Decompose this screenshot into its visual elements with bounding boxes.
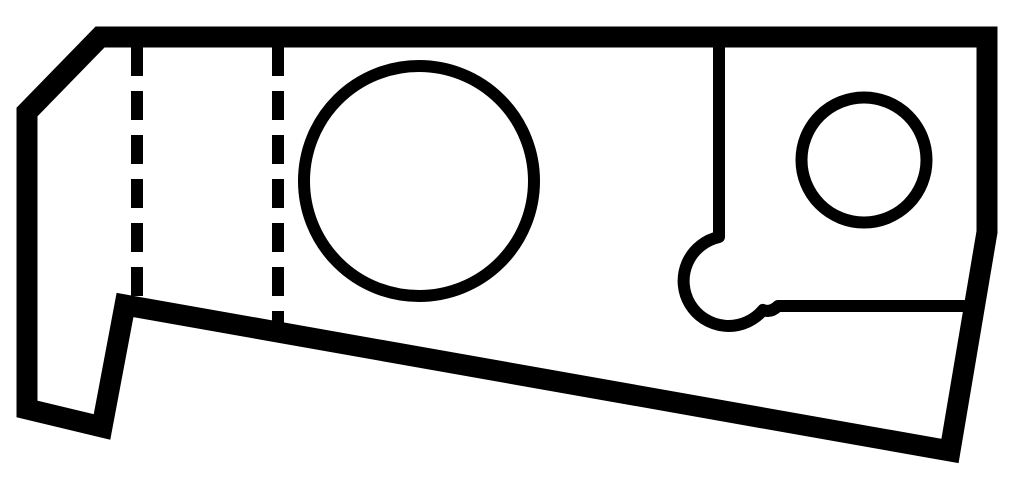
part-drawing-stage bbox=[0, 0, 1024, 492]
part-drawing bbox=[0, 0, 1024, 492]
